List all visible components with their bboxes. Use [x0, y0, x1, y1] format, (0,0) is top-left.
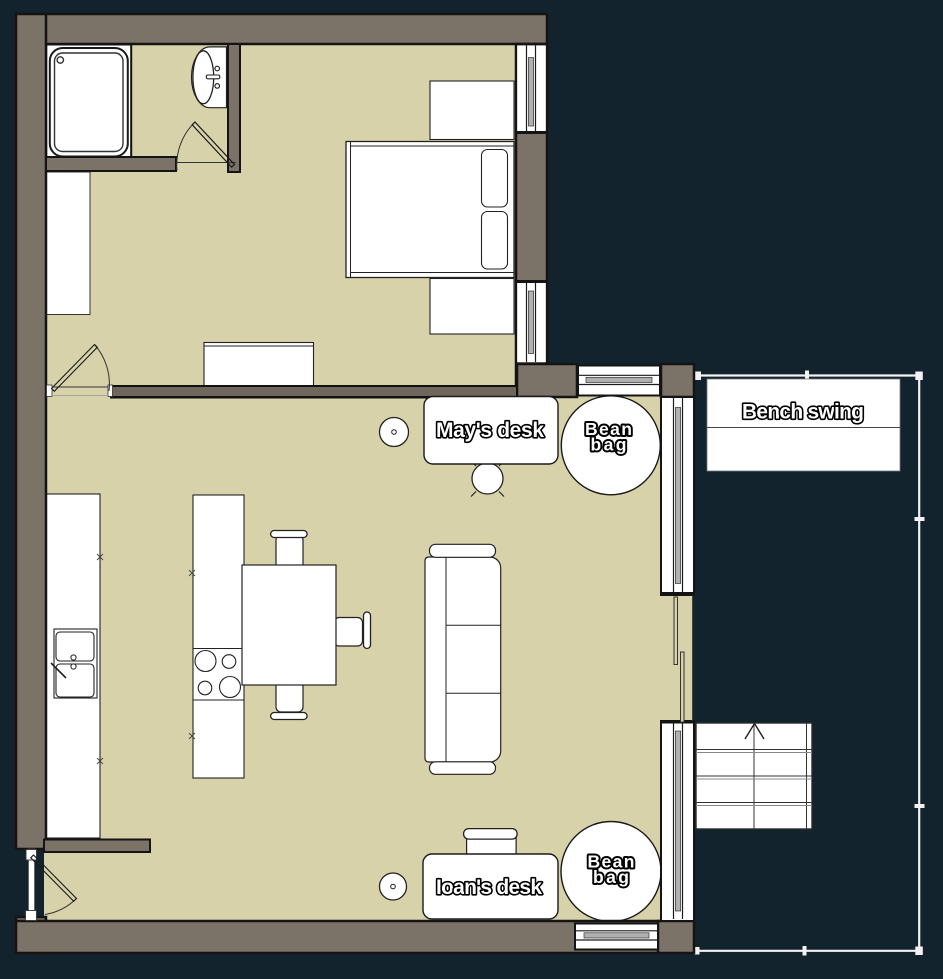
svg-text:bag: bag [593, 867, 629, 887]
svg-text:Ioan's desk: Ioan's desk [436, 876, 542, 899]
svg-text:May's desk: May's desk [436, 419, 544, 442]
svg-text:bag: bag [591, 435, 627, 455]
svg-text:Bench swing: Bench swing [742, 401, 864, 424]
